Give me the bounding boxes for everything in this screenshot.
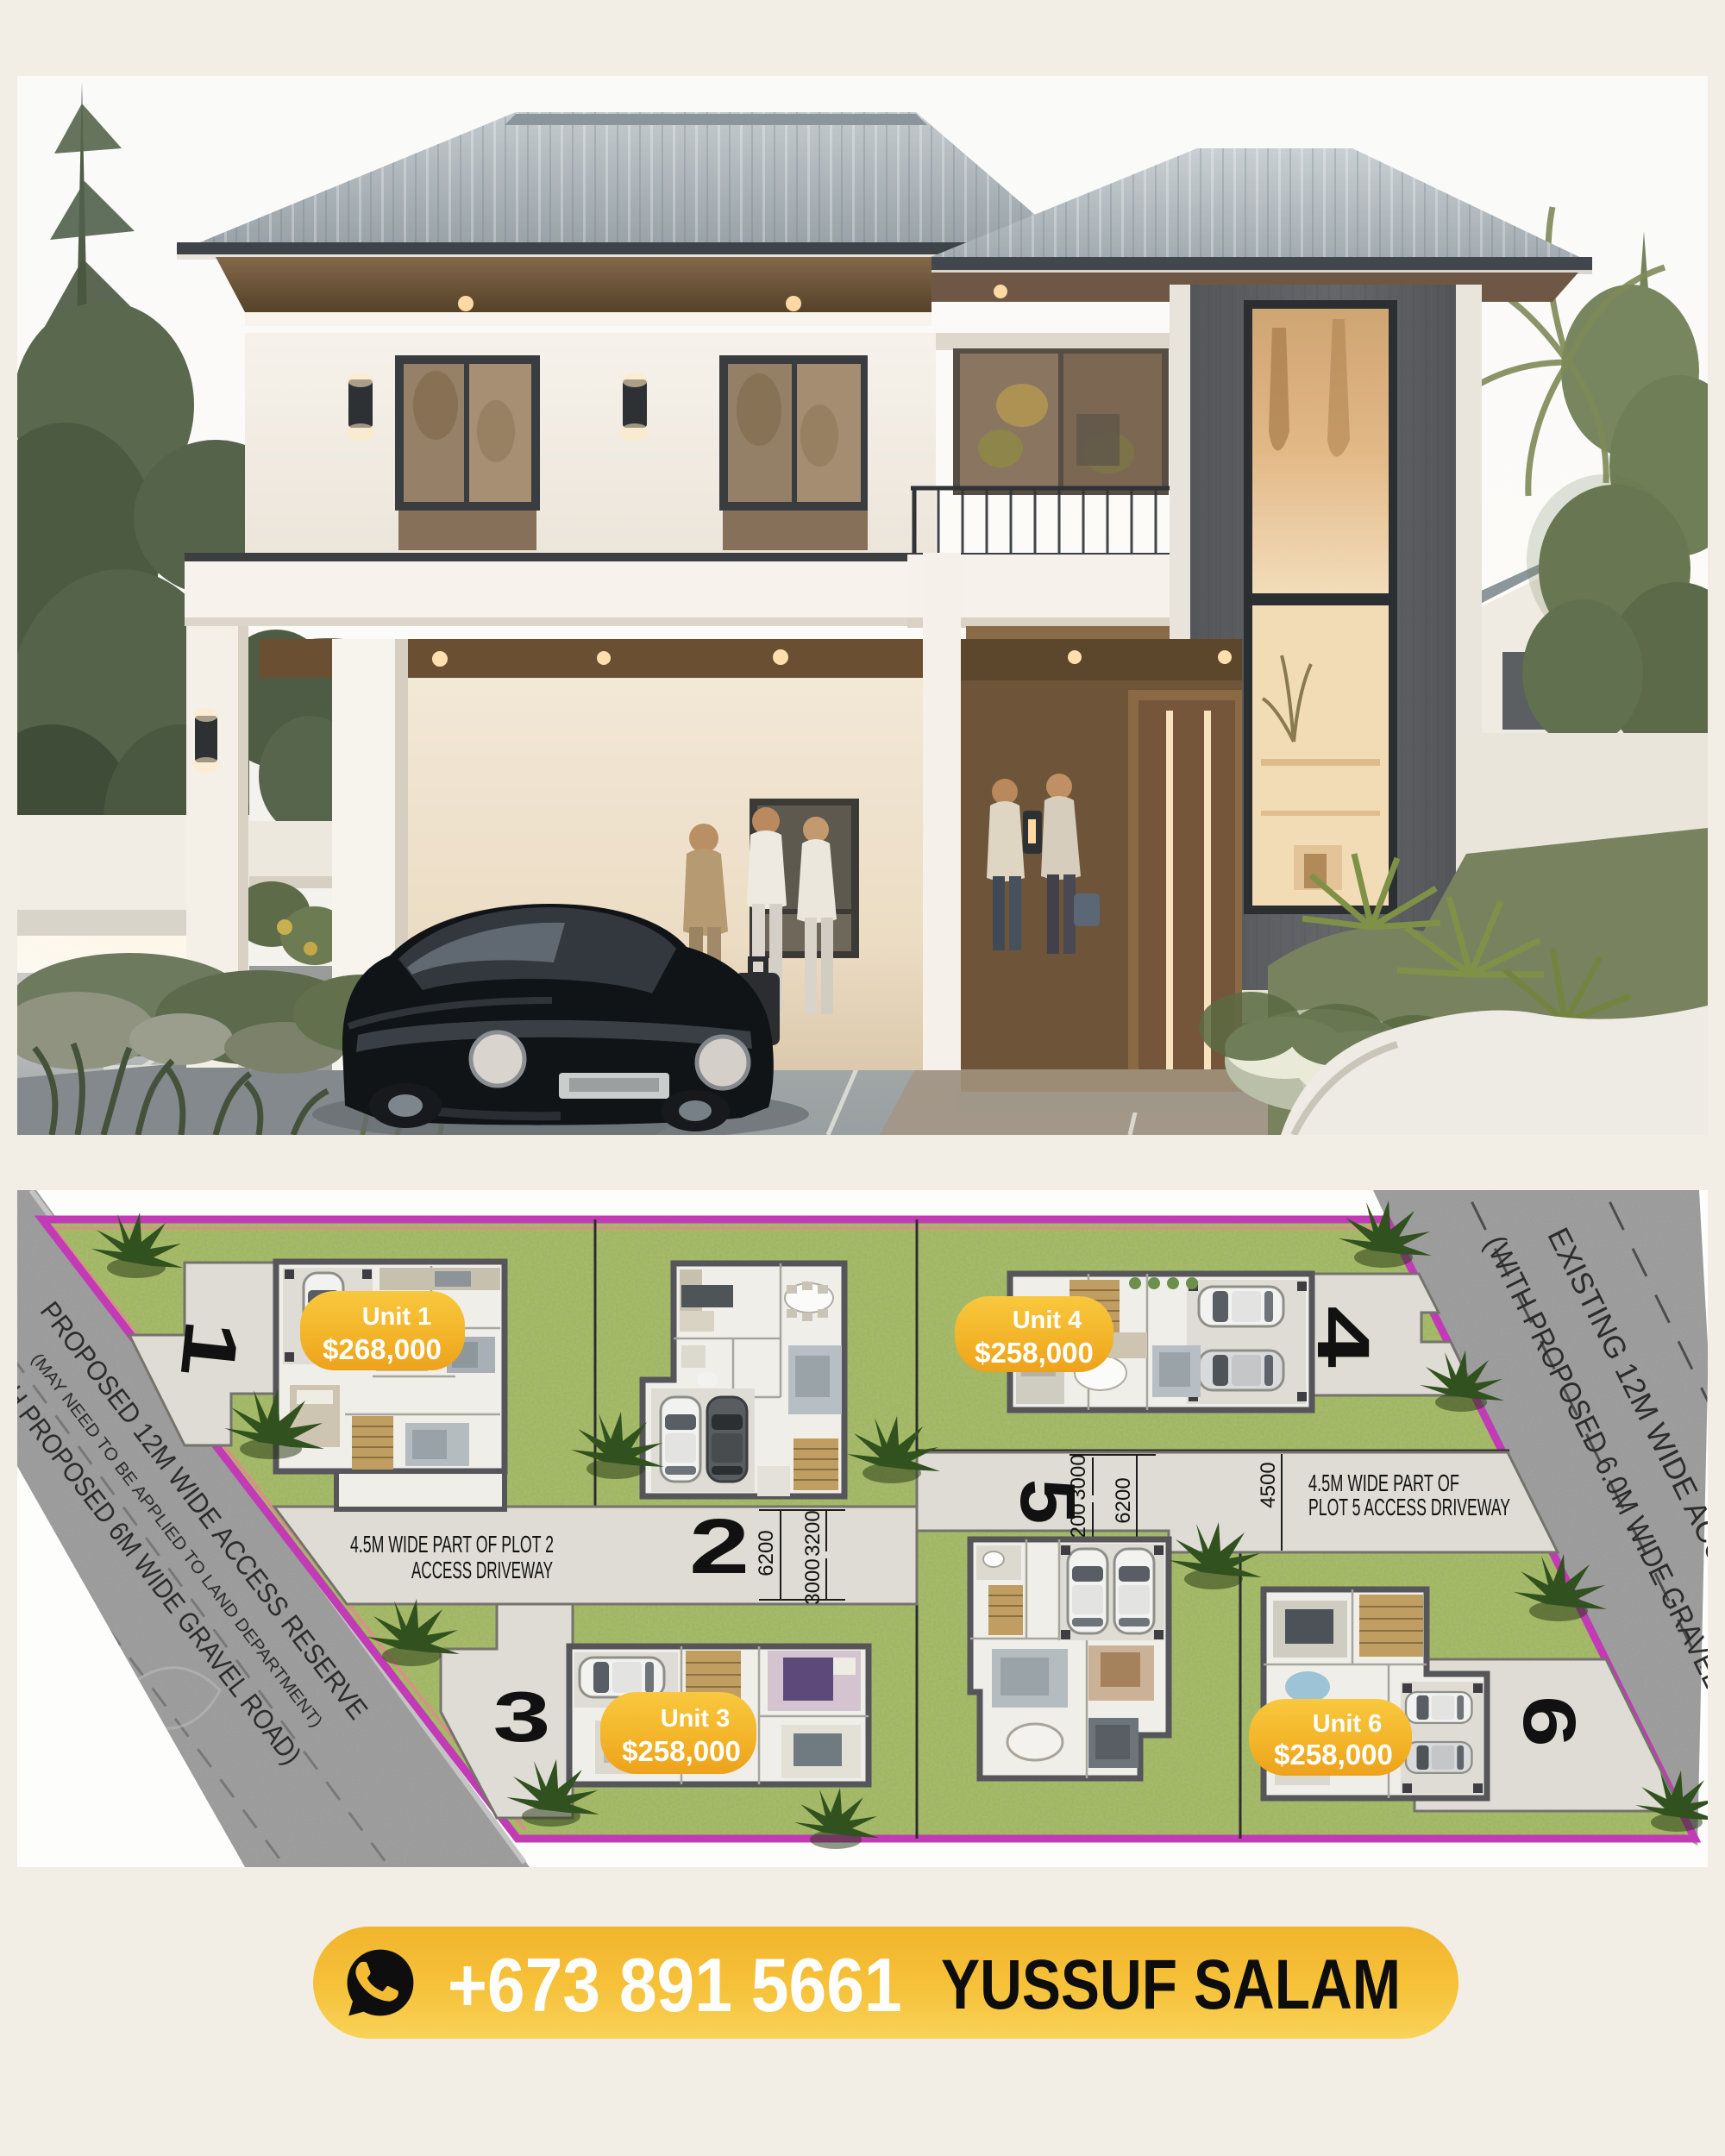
svg-text:6: 6: [1508, 1695, 1590, 1747]
svg-text:5: 5: [1004, 1479, 1091, 1525]
svg-text:Unit 4: Unit 4: [1013, 1307, 1082, 1334]
svg-text:3200: 3200: [801, 1510, 825, 1556]
svg-text:6200: 6200: [1112, 1477, 1135, 1523]
svg-text:4.5M WIDE PART OF: 4.5M WIDE PART OF: [1308, 1470, 1459, 1496]
svg-text:3000: 3000: [801, 1558, 825, 1604]
svg-text:ACCESS DRIVEWAY: ACCESS DRIVEWAY: [411, 1557, 553, 1583]
svg-text:4.5M WIDE PART OF PLOT 2: 4.5M WIDE PART OF PLOT 2: [350, 1531, 554, 1557]
svg-text:6200: 6200: [755, 1530, 778, 1576]
svg-text:Unit 3: Unit 3: [661, 1705, 731, 1733]
svg-text:$258,000: $258,000: [622, 1735, 741, 1767]
svg-text:$258,000: $258,000: [1274, 1739, 1393, 1771]
svg-text:1: 1: [164, 1316, 254, 1382]
svg-text:PLOT 5 ACCESS DRIVEWAY: PLOT 5 ACCESS DRIVEWAY: [1308, 1494, 1510, 1520]
svg-text:$258,000: $258,000: [975, 1337, 1094, 1369]
svg-text:Unit 1: Unit 1: [362, 1303, 432, 1331]
svg-text:3: 3: [493, 1677, 551, 1757]
svg-text:4500: 4500: [1257, 1462, 1280, 1507]
svg-text:Unit 6: Unit 6: [1313, 1710, 1383, 1738]
svg-text:2: 2: [689, 1503, 750, 1589]
svg-text:$268,000: $268,000: [323, 1333, 442, 1365]
